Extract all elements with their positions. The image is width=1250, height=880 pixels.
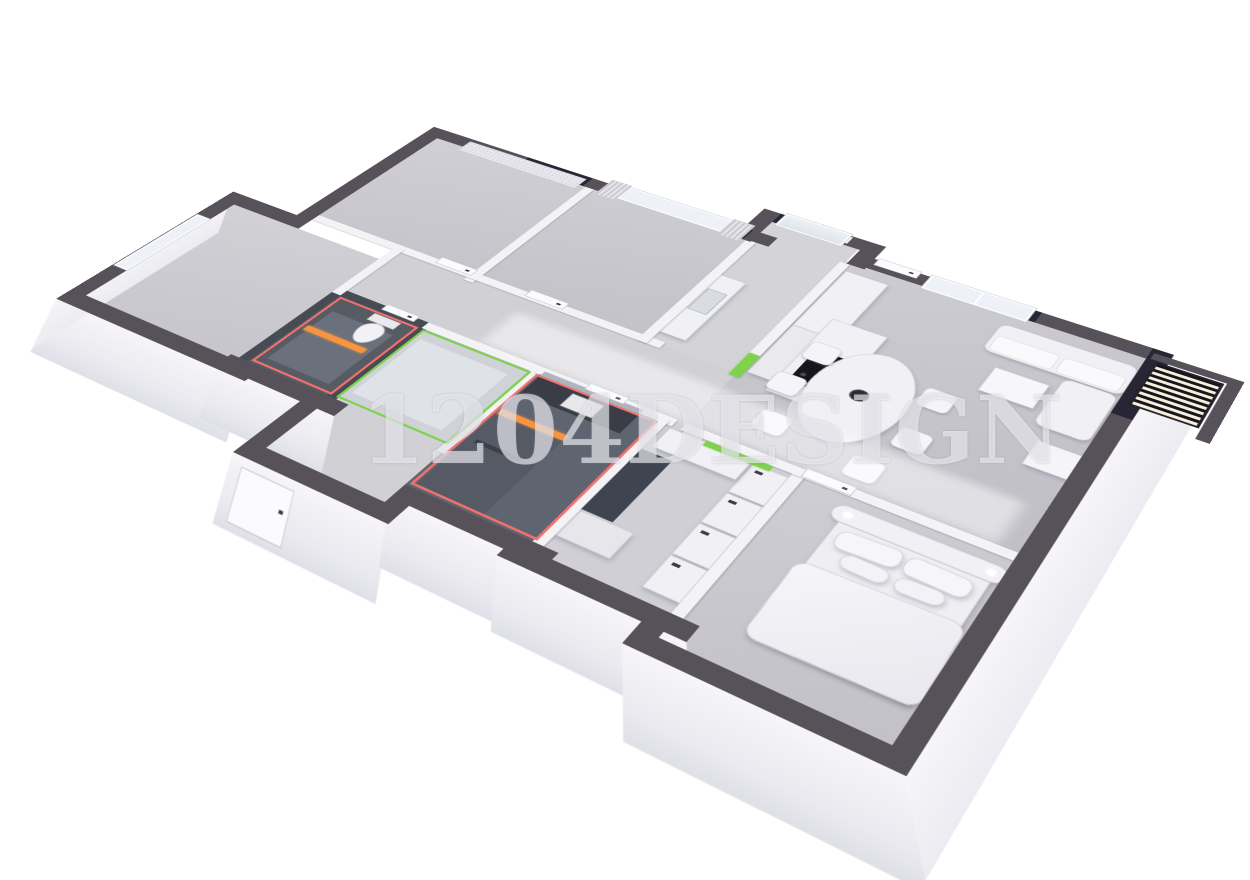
headboard-lamp-icon [984,567,998,577]
headboard-lamp-icon [841,511,854,520]
exterior-door [226,466,295,548]
apartment-plan [0,98,1246,861]
floorplan-render: 1204DESIGN [0,0,1250,880]
flower-vase [846,387,873,404]
